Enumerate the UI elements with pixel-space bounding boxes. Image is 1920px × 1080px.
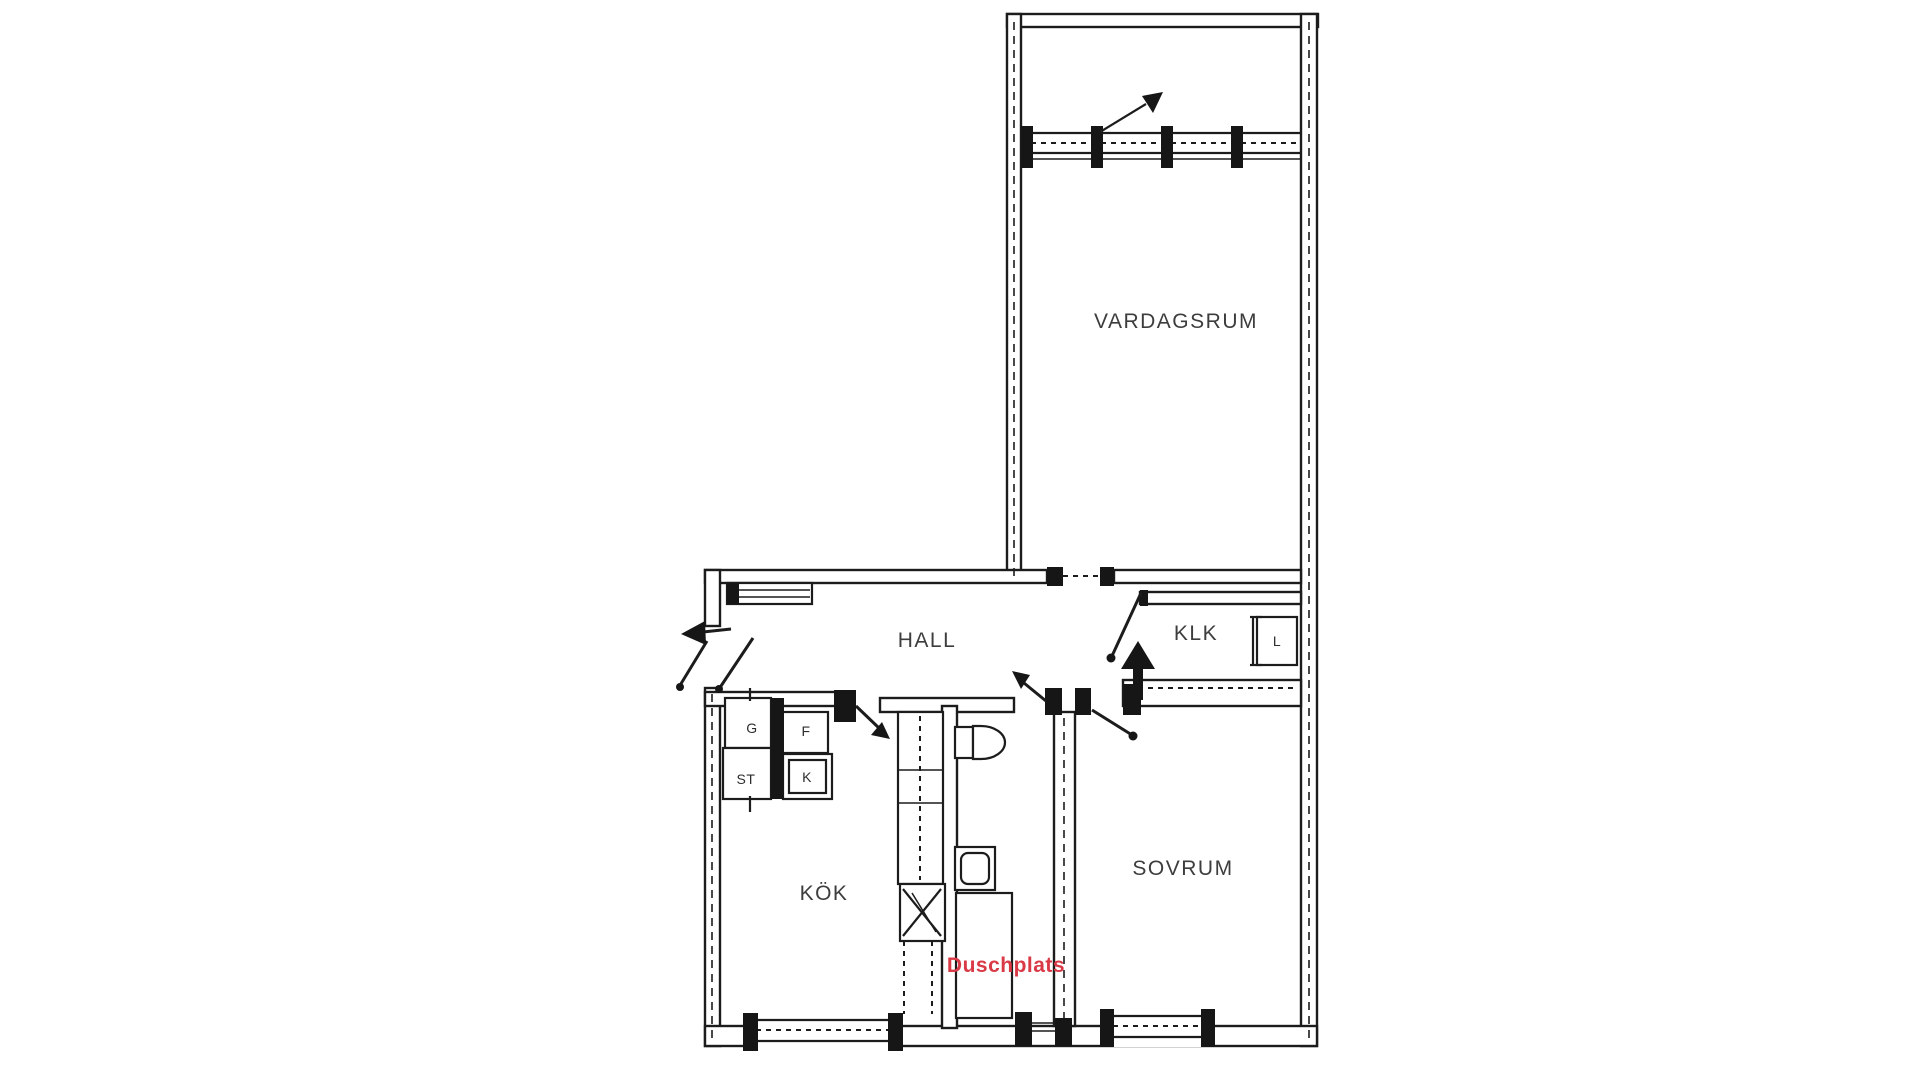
- bath-door: [1012, 671, 1046, 701]
- sovrum-window-post-left: [1100, 1009, 1114, 1047]
- room-label-duschplats: Duschplats: [947, 954, 1065, 978]
- kitchen-counter: [898, 712, 945, 1014]
- room-label-hall: HALL: [898, 629, 957, 653]
- room-label-vardagsrum: VARDAGSRUM: [1094, 310, 1258, 334]
- hall-shelf-end-cap: [727, 583, 739, 604]
- hall-shelf-outline: [727, 583, 812, 604]
- closet-label-f: F: [801, 723, 810, 739]
- wall-left-upper: [705, 570, 720, 626]
- room-label-sovrum: SOVRUM: [1132, 857, 1233, 881]
- toilet-bowl: [973, 726, 1005, 759]
- walls: [705, 14, 1318, 1046]
- window-post-3: [1161, 126, 1173, 168]
- entrance-leaf-outer: [679, 641, 707, 687]
- closet-label-l: L: [1273, 633, 1281, 649]
- closet-label-st: ST: [737, 771, 756, 787]
- wall-hall-top-left: [705, 570, 1047, 583]
- window-post-1: [1021, 126, 1033, 168]
- window-post-4: [1231, 126, 1243, 168]
- entrance-leaf-inner: [719, 638, 753, 689]
- wall-bath-sovrum: [1054, 712, 1075, 1026]
- wall-top: [1007, 14, 1318, 27]
- kok-window-post-left: [743, 1013, 758, 1051]
- window-opening-arrow-line: [1100, 104, 1146, 132]
- entrance-arrow-shaft: [703, 629, 731, 632]
- wall-hall-top-right: [1114, 570, 1301, 583]
- post-bottom-wall-a: [1015, 1012, 1032, 1046]
- kok-window: [743, 1013, 903, 1051]
- wall-klk-top: [1140, 592, 1301, 604]
- klk-arrow-head: [1121, 641, 1155, 669]
- closet-label-g: G: [746, 720, 757, 736]
- cap-klk-top-wall: [1140, 590, 1148, 606]
- jamb-bath-door: [1045, 688, 1062, 715]
- floor-plan-linework: [0, 0, 1920, 1080]
- vardagsrum-window: [1021, 92, 1301, 168]
- closet-label-k: K: [802, 769, 812, 785]
- jamb-vardagsrum-door-right: [1100, 567, 1114, 586]
- room-label-kok: KÖK: [800, 882, 849, 906]
- jamb-kok-door: [834, 690, 856, 722]
- window-opening-arrow-head: [1142, 92, 1163, 113]
- hall-shelf: [727, 583, 812, 604]
- closet-divider-wall: [771, 698, 784, 799]
- sovrum-window-post-right: [1201, 1009, 1215, 1047]
- floor-plan-canvas: VARDAGSRUM HALL KLK KÖK SOVRUM Duschplat…: [0, 0, 1920, 1080]
- entrance-leaf-pivot-a: [676, 683, 684, 691]
- sovrum-window: [1100, 1009, 1215, 1047]
- jamb-sovrum-door-left: [1075, 688, 1091, 715]
- post-bottom-wall-b: [1055, 1018, 1072, 1046]
- klk-arrow-shaft: [1133, 666, 1143, 700]
- klk-door-leaf-end: [1107, 654, 1116, 663]
- sovrum-door-leaf-end: [1129, 732, 1138, 741]
- washbasin-inner: [961, 853, 989, 884]
- kok-window-post-right: [888, 1013, 903, 1051]
- jamb-vardagsrum-door-left: [1047, 567, 1063, 586]
- kok-door-leaf: [856, 706, 880, 729]
- entrance-arrow-head: [681, 621, 706, 645]
- entrance-leaf-pivot-b: [715, 685, 723, 693]
- wall-klk-bottom: [1123, 680, 1301, 706]
- room-label-klk: KLK: [1174, 622, 1218, 646]
- bath-door-leaf: [1024, 683, 1046, 701]
- toilet-tank: [955, 727, 973, 758]
- entrance-door: [676, 621, 753, 693]
